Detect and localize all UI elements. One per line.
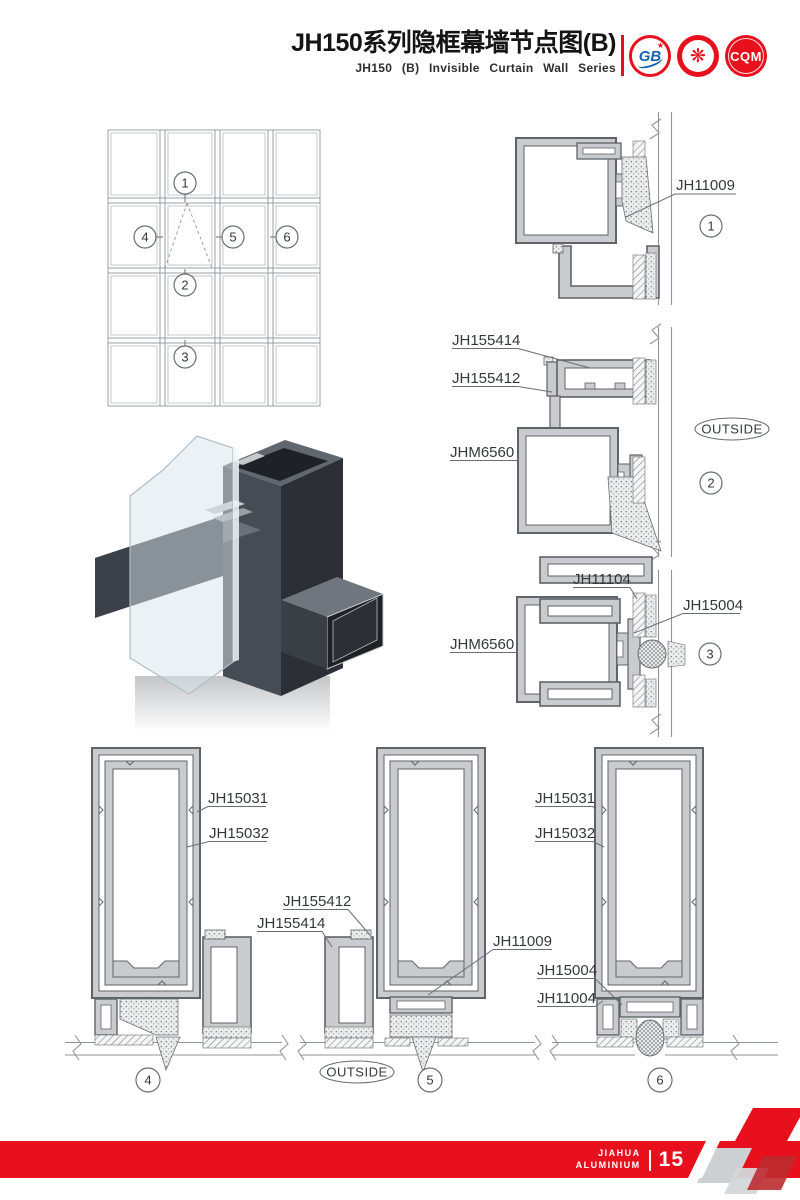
cqm-cert-logo-icon: CQM <box>725 35 767 77</box>
section-details-4-5-6: JH15031 JH15032 4 JH155412 JH155414 <box>60 735 800 1105</box>
detail-6-section: JH15031 JH15032 JH15004 JH11004 6 <box>535 748 703 1092</box>
svg-text:3: 3 <box>181 350 188 365</box>
label-d2-jhm6560: JHM6560 <box>450 444 518 461</box>
callout-5: 5 <box>222 226 244 248</box>
callout-6: 6 <box>276 226 298 248</box>
svg-text:1: 1 <box>181 176 188 191</box>
outside-marker-right: OUTSIDE <box>695 418 769 440</box>
detail-2-callout: 2 <box>700 472 722 494</box>
callout-3: 3 <box>174 346 196 368</box>
backer-rod <box>636 1020 664 1056</box>
svg-text:6: 6 <box>283 230 290 245</box>
svg-text:OUTSIDE: OUTSIDE <box>701 422 762 437</box>
page-title: JH150系列隐框幕墙节点图(B) <box>291 29 616 58</box>
label-d4-jh15031: JH15031 <box>197 790 268 812</box>
isometric-corner-render <box>85 410 415 735</box>
svg-text:JH155414: JH155414 <box>452 332 520 349</box>
label-d5-jh155414: JH155414 <box>257 915 332 947</box>
svg-text:OUTSIDE: OUTSIDE <box>326 1065 387 1080</box>
detail-3-callout: 3 <box>699 643 721 665</box>
title-divider <box>621 35 624 76</box>
svg-text:JHM6560: JHM6560 <box>450 444 514 461</box>
detail-1-section: JH11009 1 <box>516 138 736 299</box>
svg-text:2: 2 <box>181 278 188 293</box>
callout-1: 1 <box>174 172 196 194</box>
svg-text:3: 3 <box>706 647 713 662</box>
svg-text:JH11004: JH11004 <box>537 990 596 1007</box>
gb-cert-logo-icon: GB ★ <box>629 35 671 77</box>
detail-4-callout: 4 <box>136 1068 160 1092</box>
svg-text:JH155412: JH155412 <box>452 370 520 387</box>
gb-logo-text: GB <box>632 48 668 65</box>
callout-4: 4 <box>134 226 156 248</box>
backer-rod <box>638 640 666 668</box>
cqm-logo-text: CQM <box>725 49 767 64</box>
page-title-block: JH150系列隐框幕墙节点图(B) JH150 (B) Invisible Cu… <box>291 29 616 75</box>
svg-text:JH155412: JH155412 <box>283 893 351 910</box>
label-d6-jh11004: JH11004 <box>537 990 603 1007</box>
detail-3-section: JH11104 JH15004 JHM6560 3 <box>450 571 743 707</box>
svg-text:JH11104: JH11104 <box>573 571 631 588</box>
svg-text:JH15031: JH15031 <box>208 790 268 807</box>
glass-pane-3d <box>130 436 239 694</box>
svg-text:JH155414: JH155414 <box>257 915 325 932</box>
section-details-1-2-3: JH11009 1 JH155414 JH155412 <box>440 105 800 745</box>
seal-flower-icon: ❋ <box>690 47 706 66</box>
svg-text:JH11009: JH11009 <box>676 177 735 194</box>
svg-text:6: 6 <box>656 1073 663 1088</box>
callout-ticks <box>156 194 276 346</box>
svg-text:JH15032: JH15032 <box>209 825 269 842</box>
svg-text:4: 4 <box>141 230 148 245</box>
label-d6-jh15032: JH15032 <box>535 825 604 847</box>
deco-red-parallelogram-top <box>735 1108 800 1141</box>
detail-5-section: JH155412 JH155414 JH11009 OUTSIDE 5 <box>257 748 552 1092</box>
svg-text:2: 2 <box>707 476 714 491</box>
svg-text:JH15032: JH15032 <box>535 825 595 842</box>
grid-frame <box>108 130 320 406</box>
svg-text:4: 4 <box>144 1073 151 1088</box>
gb-star-icon: ★ <box>657 41 664 50</box>
svg-text:1: 1 <box>707 219 714 234</box>
label-d3-jhm6560: JHM6560 <box>450 636 517 653</box>
outside-marker-bottom: OUTSIDE <box>320 1061 394 1083</box>
detail-1-callout: 1 <box>700 215 722 237</box>
detail-5-callout: 5 <box>418 1068 442 1092</box>
callout-2: 2 <box>174 274 196 296</box>
svg-text:JHM6560: JHM6560 <box>450 636 514 653</box>
svg-text:JH15031: JH15031 <box>535 790 595 807</box>
detail-4-section: JH15031 JH15032 4 <box>92 748 269 1092</box>
svg-text:JH11009: JH11009 <box>493 933 552 950</box>
footer-decoration <box>620 1098 800 1200</box>
label-d3-jh11104: JH11104 <box>573 571 637 599</box>
certification-logos: GB ★ ❋ CQM <box>629 35 767 77</box>
svg-text:JH15004: JH15004 <box>537 962 597 979</box>
page-subtitle: JH150 (B) Invisible Curtain Wall Series <box>291 61 616 75</box>
label-d2-jh155412: JH155412 <box>452 370 552 392</box>
vent-opening-symbol <box>165 203 212 268</box>
svg-text:5: 5 <box>426 1073 433 1088</box>
catalog-page: { "header": { "title_cn": "JH150系列隐框幕墙节点… <box>0 0 800 1200</box>
detail-2-section: JH155414 JH155412 JHM6560 OUTSIDE 2 <box>450 332 769 583</box>
label-d6-jh15031: JH15031 <box>535 790 596 811</box>
svg-text:5: 5 <box>229 230 236 245</box>
label-d2-jh155414: JH155414 <box>452 332 590 368</box>
detail-6-callout: 6 <box>648 1068 672 1092</box>
elevation-grid-diagram: 1 4 5 6 2 3 <box>95 122 345 414</box>
svg-text:JH15004: JH15004 <box>683 597 743 614</box>
round-seal-logo-icon: ❋ <box>677 35 719 77</box>
